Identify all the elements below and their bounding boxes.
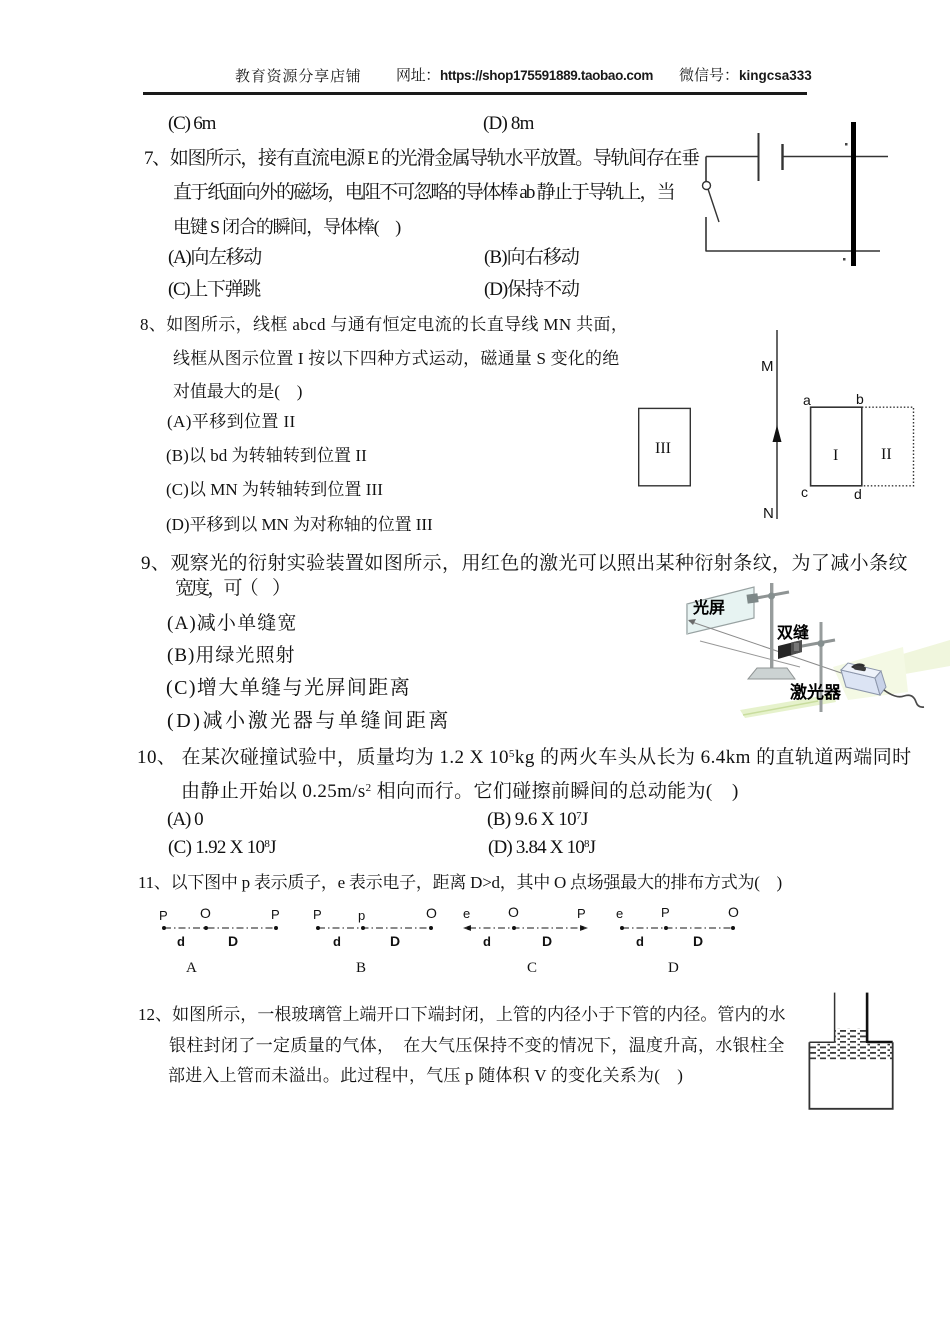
svg-text:d: d — [177, 934, 185, 949]
svg-text:D: D — [228, 933, 238, 949]
svg-text:P: P — [159, 908, 168, 923]
svg-text:b: b — [856, 391, 864, 407]
svg-text:N: N — [763, 505, 774, 522]
svg-text:光屏: 光屏 — [692, 598, 725, 617]
svg-text:d: d — [636, 934, 644, 949]
svg-text:A: A — [186, 960, 197, 976]
svg-text:e: e — [463, 906, 470, 921]
svg-text:M: M — [761, 358, 774, 375]
svg-text:d: d — [333, 934, 341, 949]
svg-text:O: O — [200, 905, 211, 921]
svg-text:双缝: 双缝 — [777, 623, 809, 642]
svg-text:III: III — [655, 440, 671, 457]
svg-text:c: c — [801, 484, 808, 500]
svg-text:激光器: 激光器 — [790, 682, 842, 702]
svg-text:O: O — [508, 904, 519, 920]
svg-text:P: P — [313, 907, 322, 922]
svg-text:O: O — [426, 905, 437, 921]
svg-text:a: a — [803, 392, 811, 408]
svg-text:d: d — [854, 486, 862, 502]
svg-text:II: II — [881, 446, 892, 463]
svg-text:d: d — [483, 934, 491, 949]
svg-text:I: I — [833, 447, 838, 464]
svg-text:P: P — [661, 905, 670, 920]
svg-text:P: P — [577, 906, 586, 921]
svg-text:O: O — [728, 904, 739, 920]
svg-text:D: D — [390, 933, 400, 949]
svg-text:p: p — [358, 908, 365, 923]
svg-text:D: D — [542, 933, 552, 949]
svg-text:D: D — [668, 960, 679, 976]
svg-text:B: B — [356, 960, 366, 976]
svg-text:P: P — [271, 907, 280, 922]
svg-text:D: D — [693, 933, 703, 949]
svg-text:C: C — [527, 960, 537, 976]
svg-text:e: e — [616, 906, 623, 921]
